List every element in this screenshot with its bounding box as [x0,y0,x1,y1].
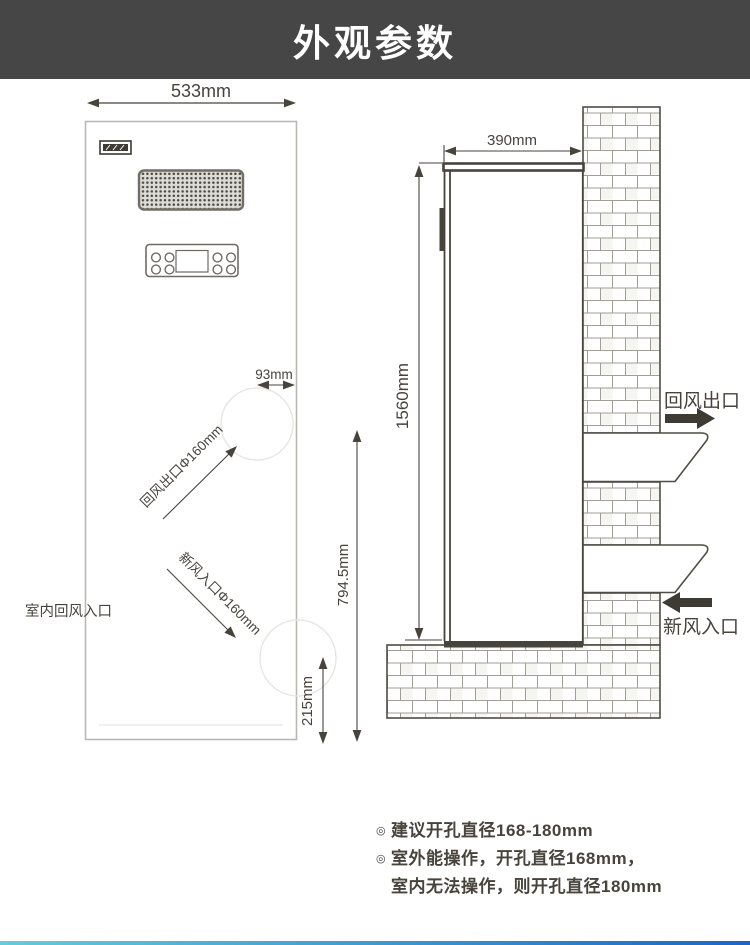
front-unit-outline [86,122,297,740]
air-grille [139,171,243,210]
appearance-diagram: 533mm 93mm 回风出口Φ160mm 新风入口Φ160mm 室内回风入口 [0,0,750,945]
note-bullet-icon: ◎ [376,817,391,845]
dim-bottom-hole-label: 215mm [299,676,316,726]
fresh-air-inlet-label: 新风入口 [663,616,739,638]
front-view: 533mm 93mm 回风出口Φ160mm 新风入口Φ160mm 室内回风入口 [25,81,361,744]
return-outlet-duct [583,433,708,482]
dim-height: 1560mm [393,163,442,640]
side-unit-top [444,164,584,171]
note-text: 建议开孔直径168-180mm [391,821,593,840]
dim-hole-height: 794.5mm [335,430,361,742]
note-bullet-icon: ◎ [376,845,391,873]
note-text: 室外能操作，开孔直径168mm， [391,849,645,868]
side-view: 390mm 1560mm 回风出口 新风入口 [387,107,740,718]
side-unit-front-edge [445,171,451,641]
note-text: 室内无法操作，则开孔直径180mm [391,877,662,896]
floor-platform [387,645,660,718]
panel-display [176,251,208,273]
dim-front-width-label: 533mm [171,81,231,101]
footer-accent-bar [0,941,750,945]
indoor-return-label: 室内回风入口 [25,603,112,620]
dim-depth: 390mm [444,132,582,162]
side-unit-base [444,641,583,648]
dim-depth-label: 390mm [487,132,537,149]
fresh-inlet-duct [583,545,708,593]
dim-height-label: 1560mm [393,363,412,429]
return-air-outlet: 回风出口 [664,390,740,429]
side-unit-handle [440,208,445,251]
fresh-air-inlet: 新风入口 [662,592,739,638]
dim-hole-offset-label: 93mm [255,367,293,382]
airflow-left-arrow-icon [662,592,712,613]
control-panel [146,245,238,277]
return-air-outlet-label: 回风出口 [664,390,740,412]
note-line: ◎室外能操作，开孔直径168mm， [376,845,716,873]
dim-hole-height-label: 794.5mm [335,544,352,607]
brand-logo [100,141,131,154]
side-unit [440,164,584,648]
dim-front-width: 533mm [87,81,296,107]
drill-hole-notes: ◎建议开孔直径168-180mm ◎室外能操作，开孔直径168mm， 室内无法操… [376,817,716,901]
note-line: 室内无法操作，则开孔直径180mm [376,873,716,901]
dim-bottom-hole: 215mm [299,657,327,744]
note-line: ◎建议开孔直径168-180mm [376,817,716,845]
